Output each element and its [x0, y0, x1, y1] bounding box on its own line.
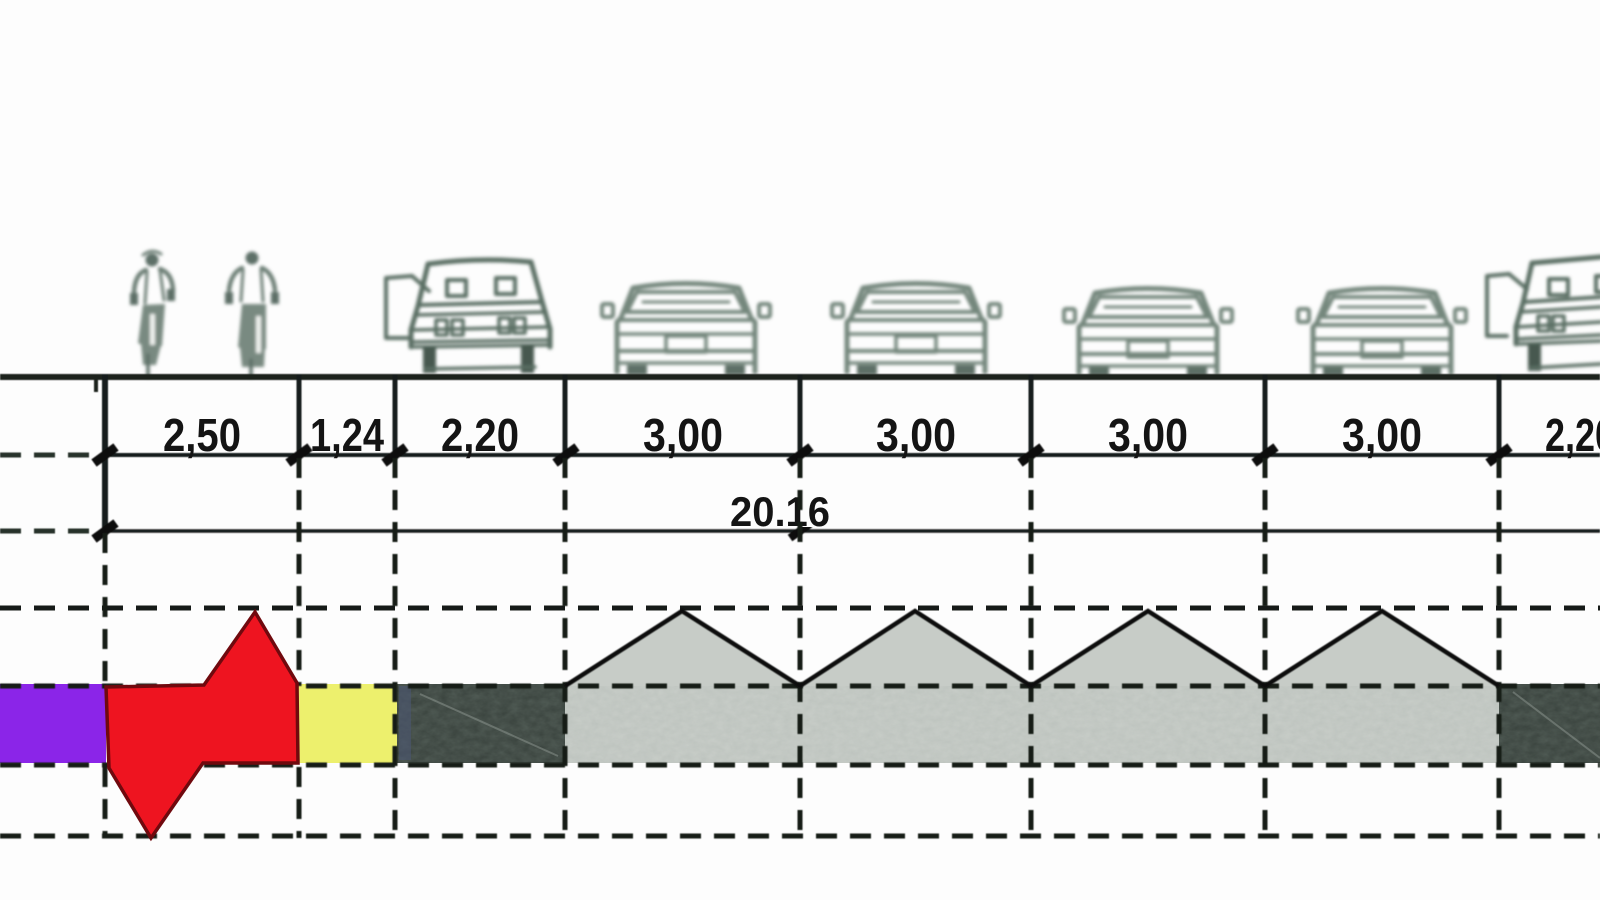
svg-text:1,24: 1,24 — [310, 409, 384, 461]
svg-text:2,20: 2,20 — [441, 409, 519, 461]
svg-text:3,00: 3,00 — [643, 409, 723, 461]
svg-text:20.16: 20.16 — [730, 488, 830, 535]
svg-text:3,00: 3,00 — [876, 409, 956, 461]
svg-text:3,00: 3,00 — [1108, 409, 1188, 461]
svg-text:2,50: 2,50 — [163, 409, 241, 461]
svg-text:3,00: 3,00 — [1342, 409, 1422, 461]
svg-text:2,20: 2,20 — [1545, 409, 1600, 461]
